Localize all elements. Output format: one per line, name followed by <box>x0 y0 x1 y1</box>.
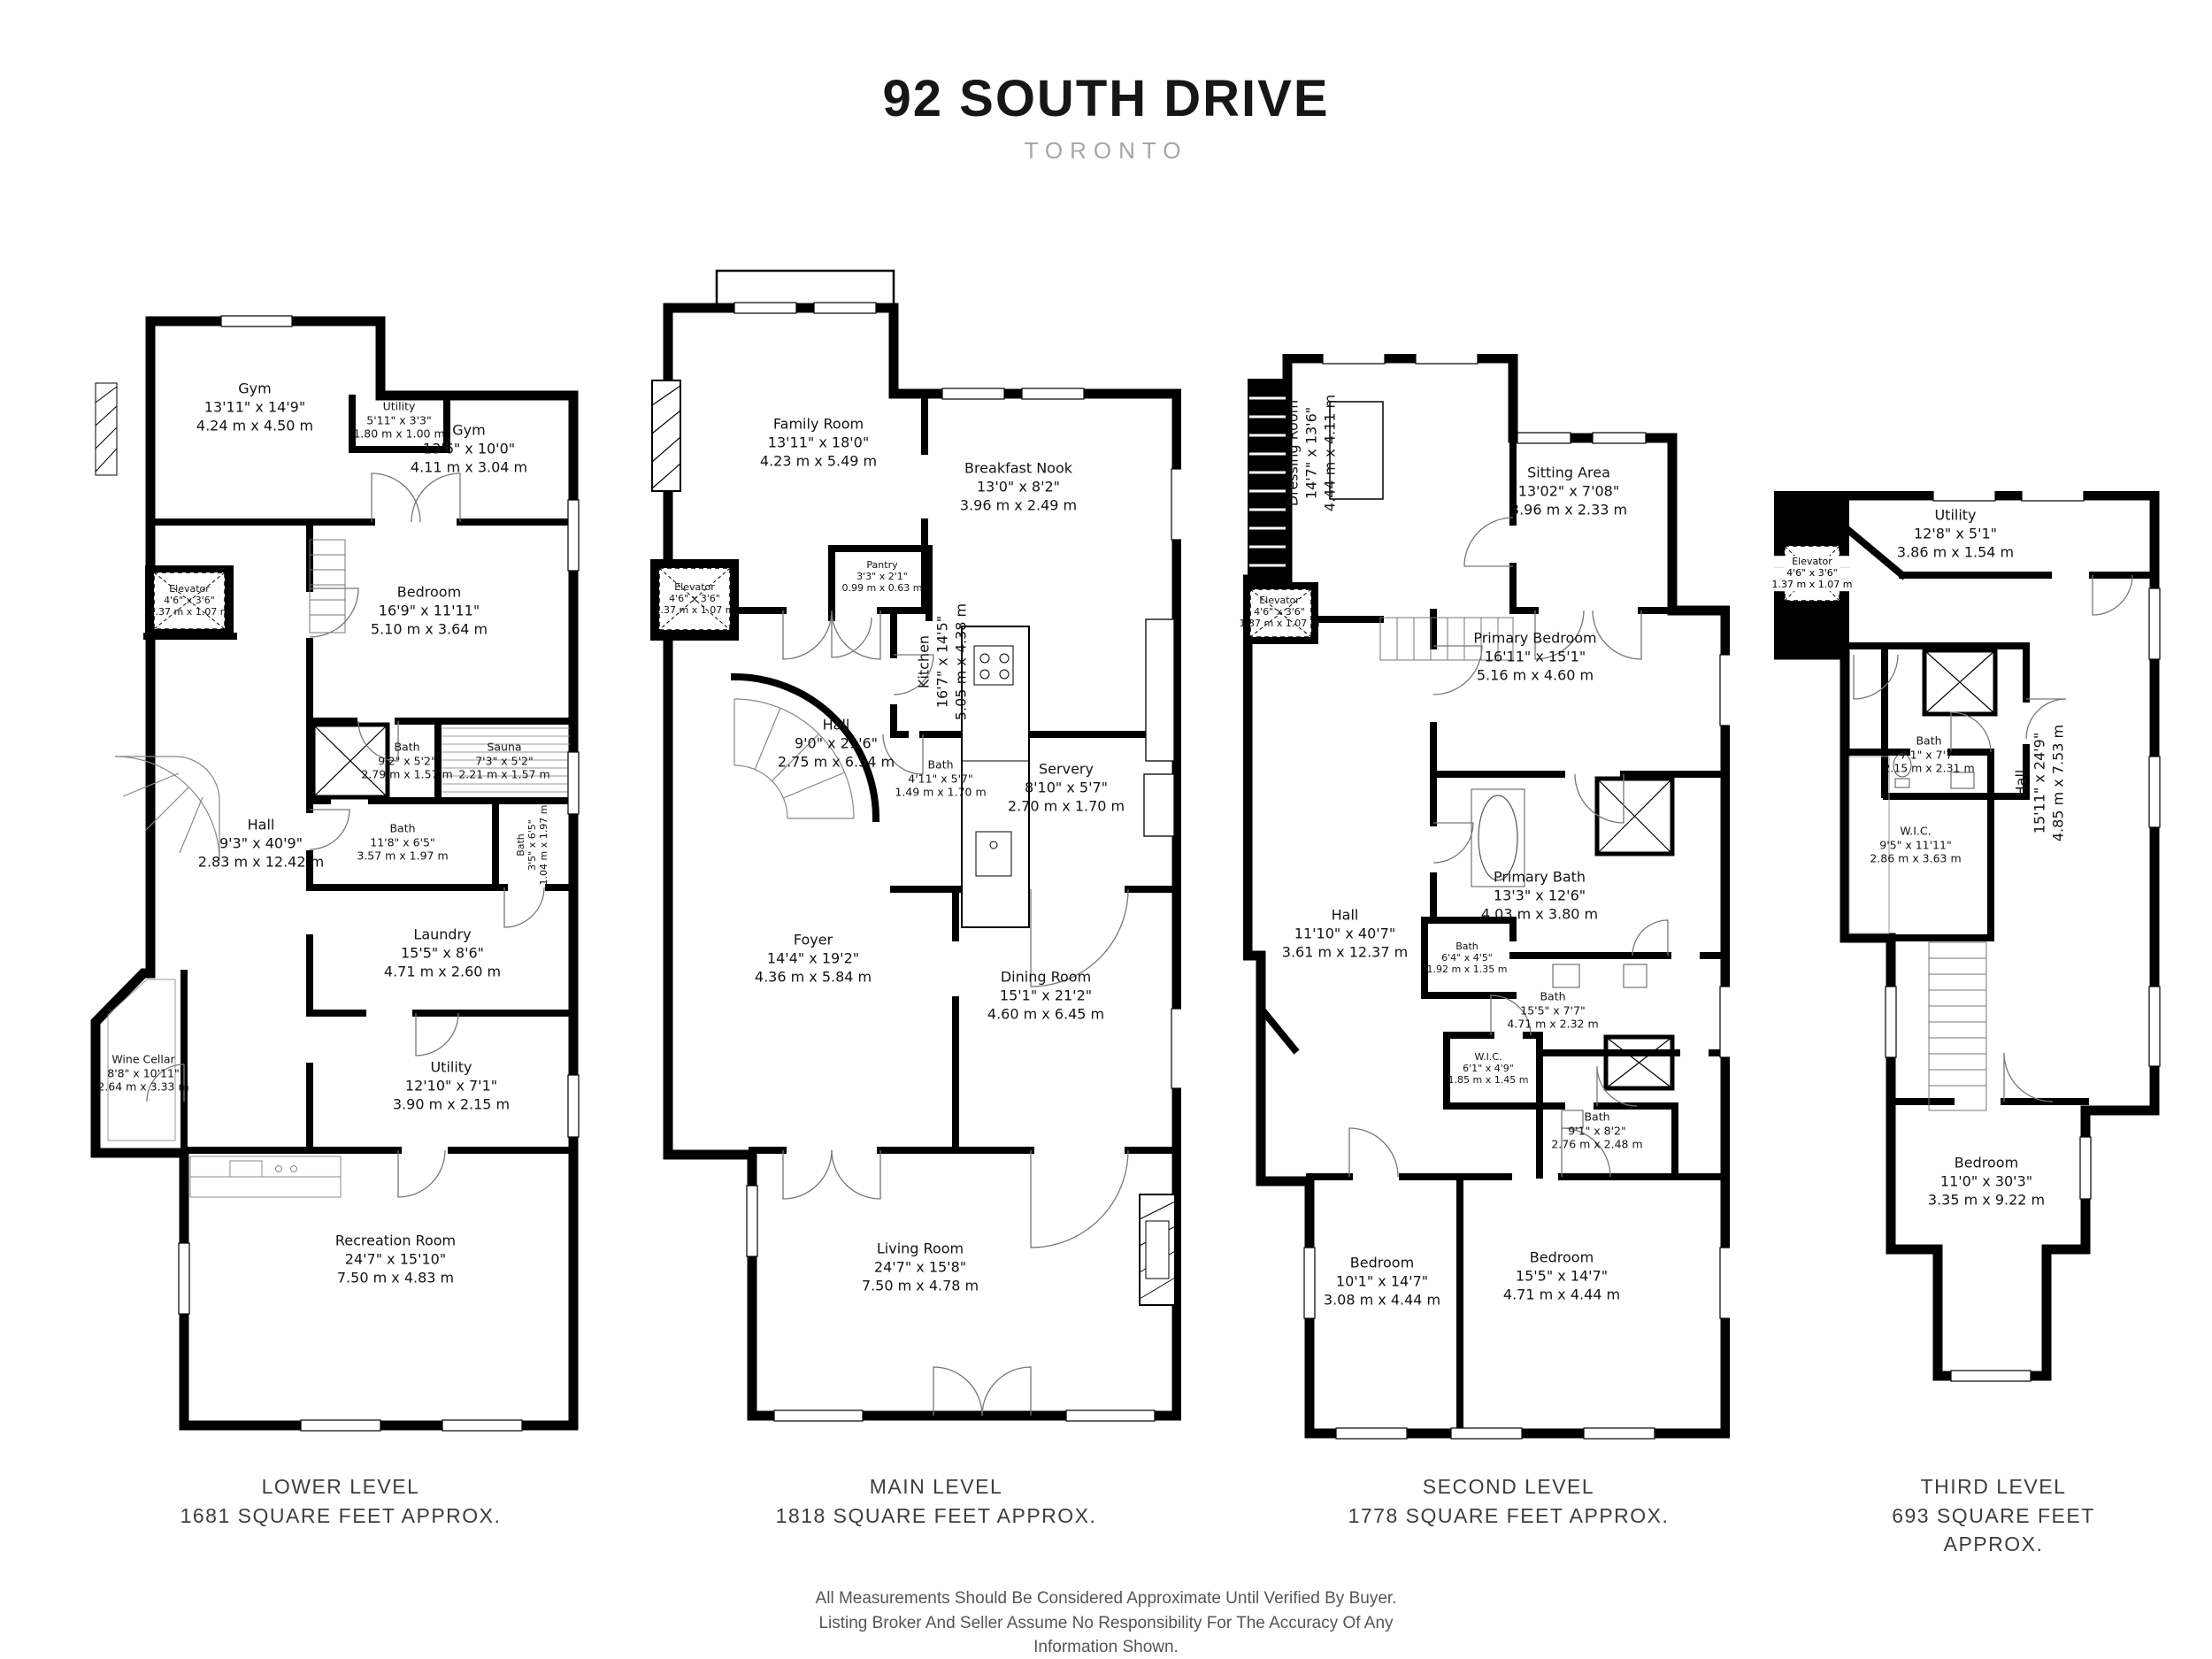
room-label-breakfast-nook: Breakfast Nook 13'0" x 8'2" 3.96 m x 2.4… <box>960 458 1077 514</box>
room-label-wine-cellar: Wine Cellar 8'8" x 10'11" 2.64 m x 3.33 … <box>97 1053 188 1094</box>
floor-plan-third-level: Utility 12'8" x 5'1" 3.86 m x 1.54 m Ele… <box>1774 491 2163 1433</box>
room-label-hall: Hall 15'11" x 24'9" 4.85 m x 7.53 m <box>2011 725 2067 841</box>
fireplace-icon <box>1140 1194 1175 1305</box>
floor-plan-lower-level: Gym 13'11" x 14'9" 4.24 m x 4.50 m Utili… <box>88 314 593 1438</box>
room-label-hall: Hall 9'3" x 40'9" 2.83 m x 12.42 m <box>198 815 324 871</box>
stairs-icon <box>1248 379 1287 580</box>
room-label-servery: Servery 8'10" x 5'7" 2.70 m x 1.70 m <box>1008 759 1125 815</box>
floor-plan-drawing-third <box>1774 491 2163 1433</box>
level-caption-name: THIRD LEVEL <box>1885 1472 2103 1502</box>
floor-plan-second-level: Dressing Room 14'7" x 13'6" 4.44 m x 4.1… <box>1243 354 1730 1442</box>
room-label-pantry: Pantry 3'3" x 2'1" 0.99 m x 0.63 m <box>842 559 923 595</box>
room-label-gym-2: Gym 13'6" x 10'0" 4.11 m x 3.04 m <box>411 420 527 476</box>
room-label-bath-2: Bath 11'8" x 6'5" 3.57 m x 1.97 m <box>357 822 448 864</box>
room-label-primary-bath: Primary Bath 13'3" x 12'6" 4.03 m x 3.80… <box>1481 867 1598 923</box>
room-label-utility: Utility 12'8" x 5'1" 3.86 m x 1.54 m <box>1897 505 2014 561</box>
room-label-primary-bedroom: Primary Bedroom 16'11" x 15'1" 5.16 m x … <box>1473 628 1596 684</box>
room-label-bath-3: Bath 3'5" x 6'5" 1.04 m x 1.97 m <box>515 805 550 886</box>
room-label-wic: W.I.C. 6'1" x 4'9" 1.85 m x 1.45 m <box>1448 1051 1529 1087</box>
floor-plan-page: 92 SOUTH DRIVE TORONTO <box>0 0 2212 1659</box>
room-label-bedroom: Bedroom 11'0" x 30'3" 3.35 m x 9.22 m <box>1928 1153 2045 1209</box>
room-label-elevator: Elevator 4'6" x 3'6" 1.37 m x 1.07 m <box>150 583 230 618</box>
disclaimer: All Measurements Should Be Considered Ap… <box>0 1586 2212 1659</box>
level-caption-main: MAIN LEVEL 1818 SQUARE FEET APPROX. <box>776 1472 1097 1530</box>
room-label-kitchen: Kitchen 16'7" x 14'5" 5.05 m x 4.38 m <box>914 603 970 720</box>
level-caption-area: 1681 SQUARE FEET APPROX. <box>180 1502 502 1531</box>
room-label-bath-main: Bath 15'5" x 7'7" 4.71 m x 2.32 m <box>1507 990 1598 1032</box>
room-label-bath: Bath 7'1" x 7'7" 2.15 m x 2.31 m <box>1883 734 1974 776</box>
room-label-living-room: Living Room 24'7" x 15'8" 7.50 m x 4.78 … <box>862 1239 979 1294</box>
room-label-bedroom-1: Bedroom 10'1" x 14'7" 3.08 m x 4.44 m <box>1324 1253 1440 1309</box>
property-title: 92 SOUTH DRIVE <box>0 69 2212 128</box>
room-label-dressing-room: Dressing Room 14'7" x 13'6" 4.44 m x 4.1… <box>1283 395 1339 511</box>
room-label-hall: Hall 9'0" x 21'6" 2.75 m x 6.54 m <box>778 715 895 771</box>
room-label-bedroom: Bedroom 16'9" x 11'11" 5.10 m x 3.64 m <box>371 582 488 638</box>
disclaimer-line: Listing Broker And Seller Assume No Resp… <box>0 1611 2212 1636</box>
level-caption-area: 693 SQUARE FEET APPROX. <box>1885 1502 2103 1559</box>
room-label-elevator: Elevator 4'6" x 3'6" 1.37 m x 1.07 m <box>1772 556 1853 591</box>
level-caption-third: THIRD LEVEL 693 SQUARE FEET APPROX. <box>1885 1472 2103 1559</box>
level-caption-lower: LOWER LEVEL 1681 SQUARE FEET APPROX. <box>180 1472 502 1530</box>
disclaimer-line: All Measurements Should Be Considered Ap… <box>0 1586 2212 1611</box>
room-label-elevator: Elevator 4'6" x 3'6" 1.37 m x 1.07 m <box>1240 595 1320 630</box>
room-label-wic: W.I.C. 9'5" x 11'11" 2.86 m x 3.63 m <box>1870 825 1961 866</box>
level-caption-second: SECOND LEVEL 1778 SQUARE FEET APPROX. <box>1348 1472 1670 1530</box>
disclaimer-line: Information Shown. <box>0 1635 2212 1659</box>
title-block: 92 SOUTH DRIVE TORONTO <box>0 69 2212 165</box>
room-label-sauna: Sauna 7'3" x 5'2" 2.21 m x 1.57 m <box>458 741 549 782</box>
property-city: TORONTO <box>0 137 2212 165</box>
room-label-foyer: Foyer 14'4" x 19'2" 4.36 m x 5.84 m <box>755 930 872 986</box>
level-caption-name: SECOND LEVEL <box>1348 1472 1670 1502</box>
room-label-laundry: Laundry 15'5" x 8'6" 4.71 m x 2.60 m <box>384 925 501 980</box>
level-caption-area: 1778 SQUARE FEET APPROX. <box>1348 1502 1670 1531</box>
kitchen-counter-icon <box>1144 619 1174 836</box>
level-caption-name: LOWER LEVEL <box>180 1472 502 1502</box>
room-label-recreation-room: Recreation Room 24'7" x 15'10" 7.50 m x … <box>335 1231 456 1286</box>
room-label-bedroom-2: Bedroom 15'5" x 14'7" 4.71 m x 4.44 m <box>1503 1248 1620 1303</box>
window-well-icon <box>96 383 117 475</box>
room-label-bath-1: Bath 9'2" x 5'2" 2.79 m x 1.57 m <box>361 741 452 782</box>
level-caption-area: 1818 SQUARE FEET APPROX. <box>776 1502 1097 1531</box>
level-caption-name: MAIN LEVEL <box>776 1472 1097 1502</box>
room-label-bath: Bath 4'11" x 5'7" 1.49 m x 1.70 m <box>895 758 986 800</box>
room-label-bath-9: Bath 9'1" x 8'2" 2.76 m x 2.48 m <box>1551 1110 1642 1152</box>
room-label-sitting-area: Sitting Area 13'02" x 7'08" 3.96 m x 2.3… <box>1510 463 1627 518</box>
floor-plan-main-level: Family Room 13'11" x 18'0" 4.23 m x 5.49… <box>650 265 1181 1425</box>
room-label-elevator: Elevator 4'6" x 3'6" 1.37 m x 1.07 m <box>655 581 735 617</box>
chimney-icon <box>652 380 680 491</box>
room-label-gym-1: Gym 13'11" x 14'9" 4.24 m x 4.50 m <box>196 379 313 434</box>
room-label-family-room: Family Room 13'11" x 18'0" 4.23 m x 5.49… <box>760 414 877 470</box>
room-label-hall: Hall 11'10" x 40'7" 3.61 m x 12.37 m <box>1282 905 1408 961</box>
room-label-utility-2: Utility 12'10" x 7'1" 3.90 m x 2.15 m <box>393 1057 510 1113</box>
room-label-bath-small: Bath 6'4" x 4'5" 1.92 m x 1.35 m <box>1427 941 1508 976</box>
room-label-dining-room: Dining Room 15'1" x 21'2" 4.60 m x 6.45 … <box>987 967 1104 1023</box>
